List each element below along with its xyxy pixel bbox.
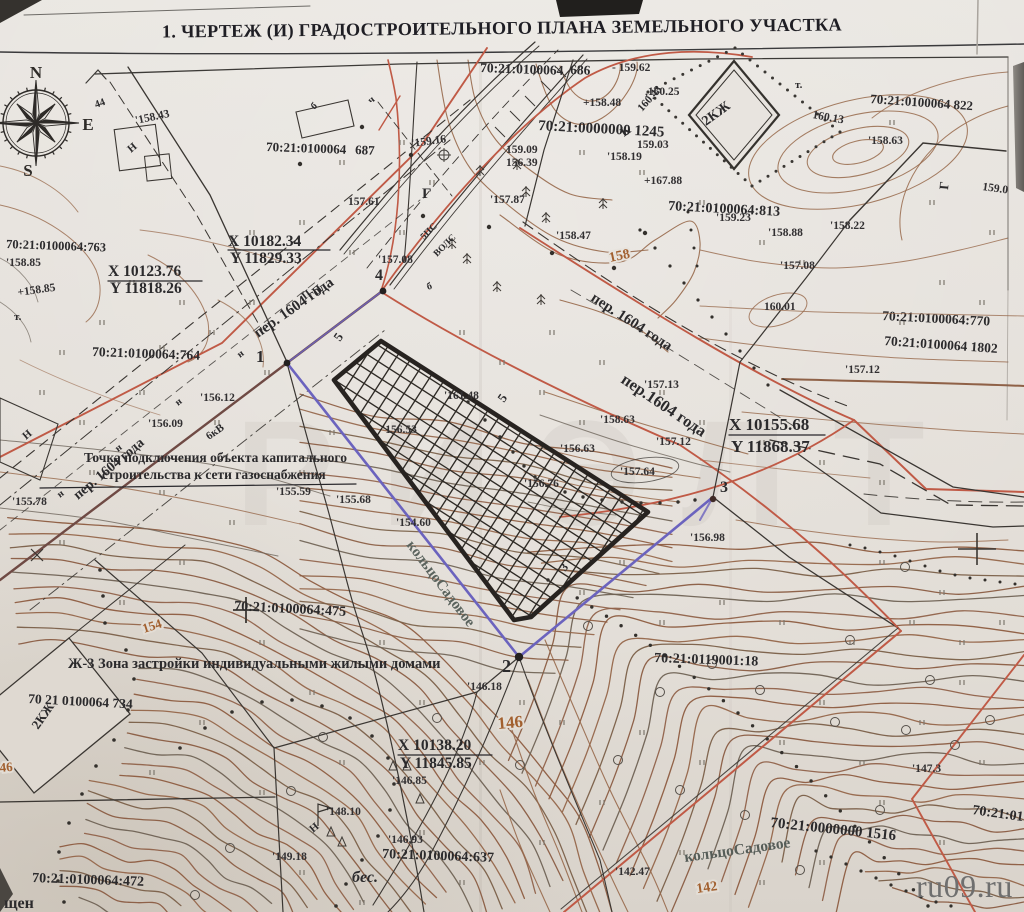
svg-text:'146.93: '146.93: [388, 834, 423, 846]
svg-text:160.01: 160.01: [764, 301, 796, 313]
svg-text:Y 11845.85: Y 11845.85: [400, 755, 472, 772]
svg-text:'156.53: '156.53: [382, 424, 417, 436]
svg-text:Y 11829.33: Y 11829.33: [230, 250, 302, 267]
svg-text:бес.: бес.: [352, 869, 378, 886]
svg-text:строительства к сети газоснабж: строительства к сети газоснабжения: [102, 467, 326, 482]
svg-text:70:21:0100064: 70:21:0100064: [266, 139, 347, 157]
svg-text:Y 11818.26: Y 11818.26: [110, 280, 182, 297]
svg-text:Г: Г: [422, 186, 432, 202]
svg-text:'159.23: '159.23: [716, 212, 751, 224]
svg-text:'156.09: '156.09: [148, 418, 183, 430]
svg-text:'157.12: '157.12: [845, 364, 880, 376]
svg-text:'147.3: '147.3: [912, 763, 941, 775]
svg-text:'161.48: '161.48: [444, 390, 479, 402]
svg-text:46: 46: [0, 759, 14, 775]
svg-text:X 10138.20: X 10138.20: [398, 737, 471, 754]
svg-text:70:21:0100064: 70:21:0100064: [480, 60, 564, 78]
svg-text:т.: т.: [795, 79, 803, 91]
svg-text:'157.13: '157.13: [644, 379, 679, 391]
svg-text:E: E: [82, 115, 93, 134]
svg-text:'158.88: '158.88: [768, 227, 803, 239]
svg-text:Ж-3 Зона застройки индивидуаль: Ж-3 Зона застройки индивидуальными жилым…: [68, 656, 440, 672]
svg-text:'155.59: '155.59: [276, 486, 311, 498]
svg-text:156.39: 156.39: [506, 157, 538, 169]
svg-text:'156.63: '156.63: [560, 443, 595, 455]
svg-text:'158.19: '158.19: [607, 151, 642, 163]
svg-text:'156.98: '156.98: [690, 532, 725, 544]
svg-text:'146.18: '146.18: [467, 681, 502, 693]
svg-text:X 10123.76: X 10123.76: [108, 263, 181, 280]
svg-text:т.: т.: [14, 311, 22, 323]
svg-text:'149.18: '149.18: [272, 851, 307, 863]
svg-text:X 10182.34: X 10182.34: [228, 233, 301, 250]
svg-text:2: 2: [502, 656, 511, 676]
svg-text:S: S: [23, 161, 32, 180]
svg-text:'146.85: '146.85: [392, 775, 427, 787]
svg-text:142: 142: [695, 879, 718, 897]
svg-text:+167.88: +167.88: [644, 175, 682, 187]
svg-text:159.09: 159.09: [506, 144, 538, 156]
svg-text:'157.64: '157.64: [620, 466, 655, 478]
svg-text:687: 687: [355, 142, 376, 158]
svg-text:'158.22: '158.22: [830, 220, 865, 232]
svg-text:1: 1: [256, 347, 265, 366]
svg-text:Точка подключения объекта капи: Точка подключения объекта капитального: [84, 450, 347, 465]
svg-text:'157.08: '157.08: [780, 260, 815, 272]
svg-text:+158.48: +158.48: [583, 97, 621, 109]
svg-text:'158.47: '158.47: [556, 230, 591, 242]
svg-text:X 10155.68: X 10155.68: [729, 415, 809, 434]
svg-text:157.61: 157.61: [348, 196, 380, 208]
svg-text:159.03: 159.03: [637, 139, 669, 151]
svg-text:'156.76: '156.76: [524, 478, 559, 490]
svg-text:'158.85: '158.85: [6, 257, 41, 269]
svg-text:'155.78: '155.78: [12, 496, 47, 508]
svg-text:Г: Г: [936, 181, 952, 191]
svg-text:- 159.62: - 159.62: [612, 62, 651, 74]
svg-text:,160.25: ,160.25: [645, 86, 680, 98]
svg-text:N: N: [30, 63, 43, 82]
svg-text:'154.60: '154.60: [396, 517, 431, 529]
svg-text:'157.87: '157.87: [490, 194, 525, 206]
svg-text:4: 4: [375, 267, 383, 284]
svg-text:'156.12: '156.12: [200, 392, 235, 404]
svg-text:3: 3: [720, 479, 728, 496]
svg-text:'158.63: '158.63: [600, 414, 635, 426]
svg-text:'142.47: '142.47: [615, 866, 650, 878]
svg-text:ru09.ru: ru09.ru: [916, 868, 1013, 904]
svg-text:щен: щен: [4, 895, 34, 912]
svg-text:146: 146: [497, 712, 524, 733]
svg-text:'157.08: '157.08: [378, 254, 413, 266]
svg-text:Y 11868.37: Y 11868.37: [731, 437, 810, 456]
svg-text:686: 686: [570, 62, 591, 78]
svg-text:'157.12: '157.12: [656, 436, 691, 448]
svg-text:'158.63: '158.63: [868, 135, 903, 147]
svg-text:'148.10: '148.10: [326, 806, 361, 818]
svg-text:'155.68: '155.68: [336, 494, 371, 506]
